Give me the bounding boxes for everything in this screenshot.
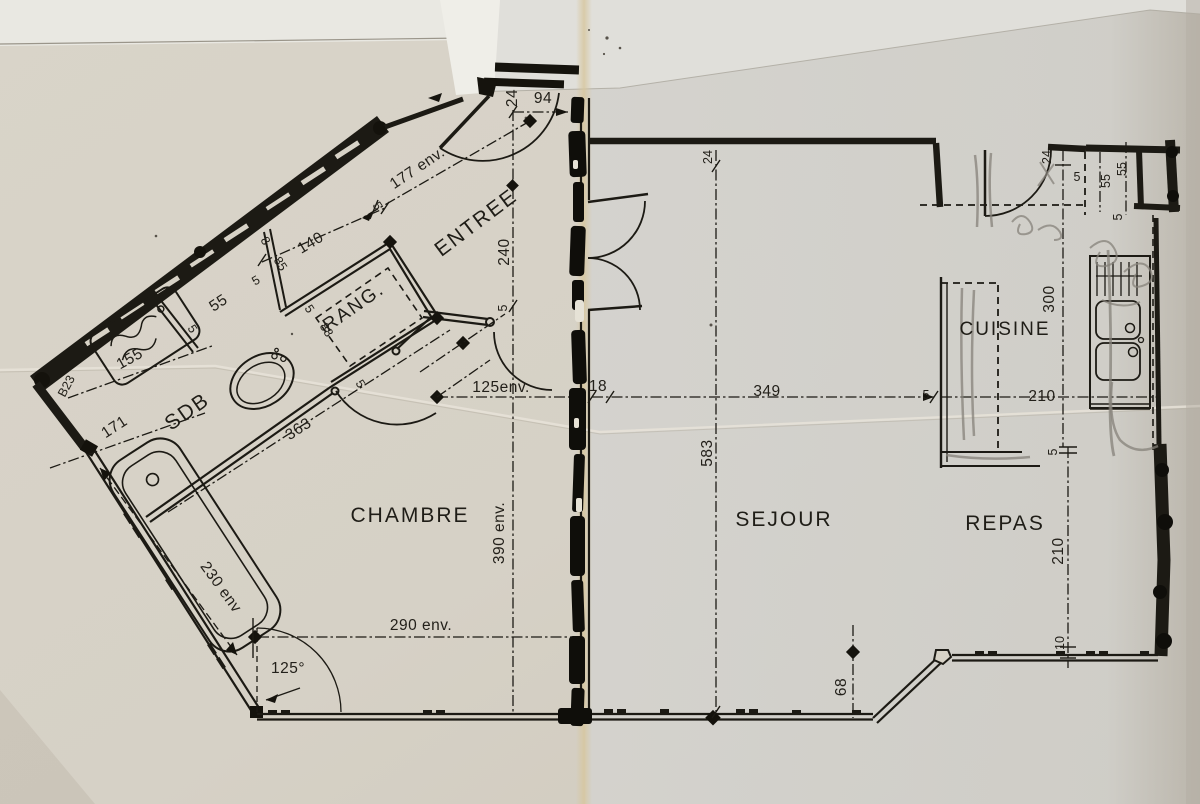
cuisine-left-stub-wall <box>936 143 940 207</box>
dim-label: 390 env. <box>491 502 508 564</box>
scanned-floor-plan: ENTREE RANG. SDB CHAMBRE SEJOUR REPAS CU… <box>0 0 1200 804</box>
dim-label: 18 <box>589 378 607 395</box>
dim-label: 5 <box>1074 170 1081 184</box>
dim-label: 5 <box>1046 448 1060 455</box>
dim-label: 24 <box>701 150 715 164</box>
room-label-sejour: SEJOUR <box>735 508 832 531</box>
paper-right-half <box>585 0 1200 804</box>
dim-label: 94 <box>534 90 552 107</box>
dim-label: 5 <box>923 388 930 402</box>
cuisine-right-stub-wall <box>1048 147 1086 149</box>
dim-label: 290 env. <box>390 617 452 634</box>
dim-label: 55 <box>1115 162 1129 176</box>
dim-label: 125° <box>271 660 305 677</box>
room-label-chambre: CHAMBRE <box>350 504 469 527</box>
dim-label: 300 <box>1041 285 1058 312</box>
dim-label: 24 <box>504 89 521 107</box>
dim-label: 24 <box>1040 150 1054 164</box>
dim-label: 240 <box>496 238 513 265</box>
right-edge-shadow <box>1186 0 1200 804</box>
dim-label: 210 <box>1028 388 1055 405</box>
dim-label: 125env. <box>472 379 530 396</box>
dim-label: 583 <box>699 439 716 466</box>
dim-label: 210 <box>1050 537 1067 564</box>
room-label-repas: REPAS <box>965 512 1045 535</box>
floor-plan-canvas: ENTREE RANG. SDB CHAMBRE SEJOUR REPAS CU… <box>0 0 1200 804</box>
dim-label: 55 <box>1099 174 1113 188</box>
dim-label: 5 <box>496 304 510 311</box>
dim-label: 5 <box>1111 213 1125 220</box>
dim-label: 10 <box>1053 636 1067 650</box>
dim-label: 68 <box>833 678 850 696</box>
dim-label: 349 <box>753 383 780 400</box>
room-label-cuisine: CUISINE <box>959 319 1050 340</box>
